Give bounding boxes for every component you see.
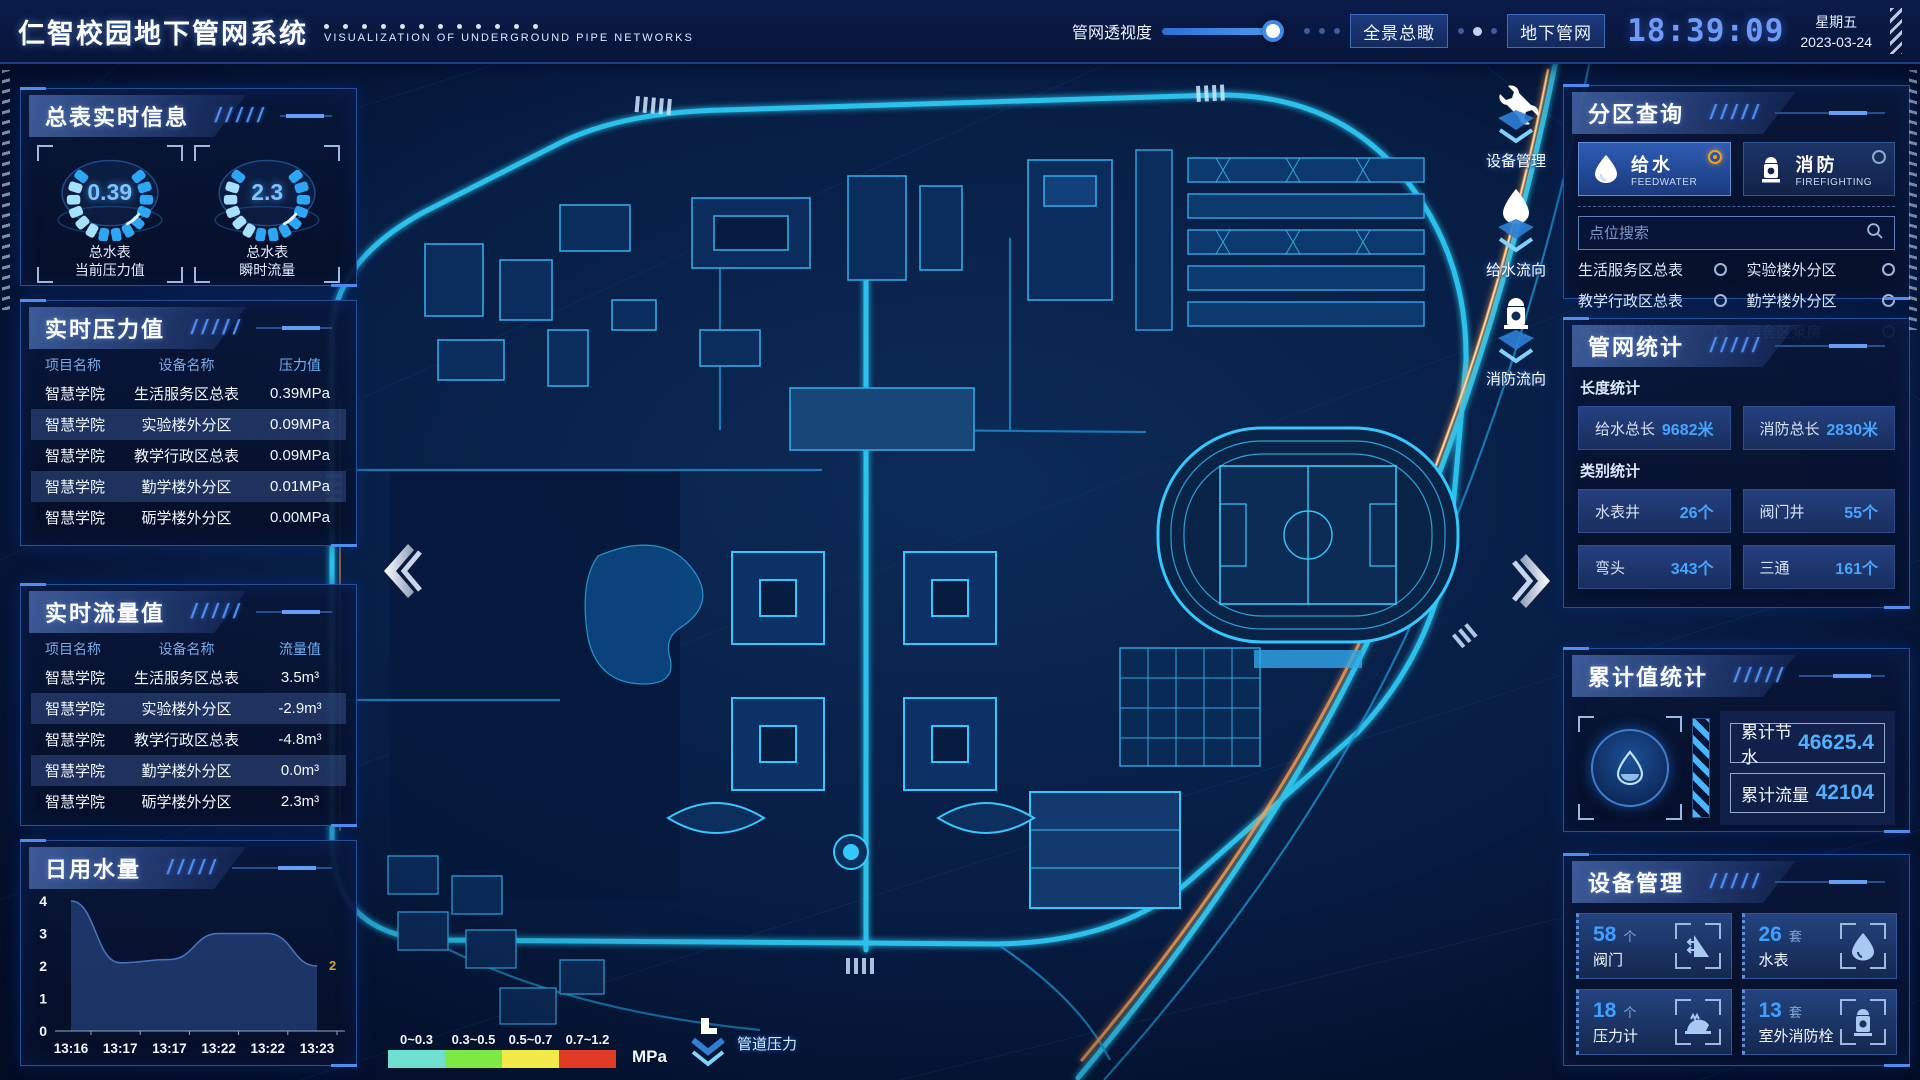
- table-row[interactable]: 智慧学院实验楼外分区-2.9m³: [31, 693, 346, 724]
- underground-pipes-button[interactable]: 地下管网: [1507, 14, 1605, 48]
- stat-chip: 三通161个: [1743, 545, 1896, 589]
- gauge-pressure: 0.39 总水表当前压力值: [37, 145, 183, 283]
- gauge-label: 总水表当前压力值: [75, 243, 145, 279]
- pipe-pressure-icon: [687, 1016, 729, 1068]
- water-drop-icon: [1591, 729, 1669, 807]
- daily-water-area-chart: 0123413:1613:1713:1713:2213:2213:232: [25, 889, 353, 1061]
- clock-date: 2023-03-24: [1800, 34, 1872, 50]
- tab-feedwater[interactable]: 给水FEEDWATER: [1578, 142, 1731, 196]
- svg-text:13:22: 13:22: [201, 1041, 236, 1056]
- svg-text:3: 3: [39, 926, 47, 942]
- search-input[interactable]: [1589, 225, 1866, 242]
- legend-range: 0.5~0.7: [502, 1032, 559, 1068]
- slashes-deco: /////: [167, 857, 220, 880]
- pipe-opacity-label: 管网透视度: [1072, 19, 1152, 43]
- panel-title: 日用水量: [45, 852, 141, 884]
- table-row[interactable]: 智慧学院教学行政区总表-4.8m³: [31, 724, 346, 755]
- map-pan-left-arrow[interactable]: [374, 538, 426, 604]
- clock-time: 18:39:09: [1627, 13, 1784, 49]
- table-row[interactable]: 智慧学院实验楼外分区0.09MPa: [31, 409, 346, 440]
- panel-realtime-pressure: 实时压力值 ///// 项目名称 设备名称 压力值 智慧学院生活服务区总表0.3…: [20, 300, 357, 546]
- slashes-deco: /////: [1710, 335, 1763, 358]
- table-row[interactable]: 智慧学院教学行政区总表0.09MPa: [31, 440, 346, 471]
- dots-separator: [1458, 27, 1497, 36]
- hazard-stripes-deco: [1890, 8, 1902, 54]
- gauge-value: 2.3: [194, 179, 340, 206]
- tab-radio: [1708, 150, 1722, 164]
- pipe-pressure-label: 管道压力: [737, 1033, 797, 1054]
- layer-firefighting-flow[interactable]: 消防流向: [1484, 292, 1548, 389]
- edge-deco: [2, 70, 10, 310]
- flow-table: 项目名称 设备名称 流量值 智慧学院生活服务区总表3.5m³ 智慧学院实验楼外分…: [31, 635, 346, 817]
- svg-text:0: 0: [39, 1023, 47, 1039]
- table-row[interactable]: 智慧学院生活服务区总表0.39MPa: [31, 378, 346, 409]
- zone-item[interactable]: 实验楼外分区: [1747, 254, 1896, 285]
- gauge-value: 0.39: [37, 179, 183, 206]
- top-header: 仁智校园地下管网系统 VISUALIZATION OF UNDERGROUND …: [0, 0, 1920, 64]
- panel-zone-query: 分区查询 ///// 给水FEEDWATER 消防FIREFIGHTING: [1563, 85, 1910, 299]
- tab-firefighting[interactable]: 消防FIREFIGHTING: [1743, 142, 1896, 196]
- panel-pipe-stats: 管网统计 ///// 长度统计 给水总长9682米 消防总长2830米 类别统计…: [1563, 318, 1910, 608]
- stripe-deco: [1692, 718, 1710, 818]
- hydrant-icon: [1840, 999, 1886, 1045]
- slashes-deco: /////: [191, 317, 244, 340]
- gauge-flow: 2.3 总水表瞬时流量: [194, 145, 340, 283]
- pressure-table: 项目名称 设备名称 压力值 智慧学院生活服务区总表0.39MPa 智慧学院实验楼…: [31, 351, 346, 533]
- valve-icon: [1675, 923, 1721, 969]
- device-card-pressure-gauge[interactable]: 18个 压力计: [1576, 989, 1732, 1055]
- legend-swatch: [388, 1050, 445, 1068]
- stat-chip: 消防总长2830米: [1743, 406, 1896, 450]
- panel-daily-water: 日用水量 ///// 0123413:1613:1713:1713:2213:2…: [20, 840, 357, 1066]
- gauge-label: 总水表瞬时流量: [239, 243, 295, 279]
- svg-text:1: 1: [39, 991, 47, 1007]
- app-subtitle-block: VISUALIZATION OF UNDERGROUND PIPE NETWOR…: [324, 24, 694, 44]
- table-header: 项目名称 设备名称 流量值: [31, 635, 346, 662]
- radio-icon[interactable]: [1714, 263, 1727, 276]
- svg-text:2: 2: [39, 958, 47, 974]
- panel-title: 管网统计: [1588, 330, 1684, 362]
- wrench-icon: [1484, 74, 1548, 148]
- panel-title: 设备管理: [1588, 866, 1684, 898]
- legend-unit: MPa: [632, 1047, 667, 1067]
- stat-chip: 给水总长9682米: [1578, 406, 1731, 450]
- legend-swatch: [502, 1050, 559, 1068]
- layer-device-management[interactable]: 设备管理: [1484, 74, 1548, 171]
- water-drop-icon: [1589, 152, 1623, 186]
- water-drop-icon: [1484, 183, 1548, 257]
- svg-text:13:16: 13:16: [54, 1041, 89, 1056]
- search-icon[interactable]: [1866, 222, 1884, 245]
- cumulative-flow-box: 累计流量 42104: [1730, 773, 1885, 813]
- svg-text:13:22: 13:22: [251, 1041, 286, 1056]
- slashes-deco: /////: [1710, 871, 1763, 894]
- search-box: [1578, 216, 1895, 250]
- legend-range: 0~0.3: [388, 1032, 445, 1068]
- legend-range: 0.7~1.2: [559, 1032, 616, 1068]
- svg-text:13:17: 13:17: [152, 1041, 187, 1056]
- slashes-deco: /////: [191, 601, 244, 624]
- svg-text:13:23: 13:23: [300, 1041, 335, 1056]
- water-meter-icon: [1840, 923, 1886, 969]
- dashboard: 仁智校园地下管网系统 VISUALIZATION OF UNDERGROUND …: [0, 0, 1920, 1080]
- hydrant-icon: [1484, 292, 1548, 366]
- clock-weekday: 星期五: [1815, 12, 1857, 32]
- panel-device-management: 设备管理 ///// 58个 阀门 26套 水表 18个 压力计: [1563, 854, 1910, 1066]
- panel-title: 分区查询: [1588, 97, 1684, 129]
- water-saving-icon-box: [1578, 716, 1682, 820]
- device-card-valve[interactable]: 58个 阀门: [1576, 913, 1732, 979]
- map-layer-controls: 设备管理 给水流向 消防流向: [1470, 74, 1562, 389]
- dashed-divider: [1578, 206, 1895, 207]
- dots-separator: [1304, 28, 1340, 34]
- radio-icon[interactable]: [1882, 263, 1895, 276]
- radio-icon[interactable]: [1714, 294, 1727, 307]
- pressure-legend: 0~0.30.3~0.50.5~0.70.7~1.2 MPa 管道压力: [388, 1016, 797, 1068]
- table-row[interactable]: 智慧学院勤学楼外分区0.01MPa: [31, 471, 346, 502]
- zone-item[interactable]: 生活服务区总表: [1578, 254, 1727, 285]
- table-row[interactable]: 智慧学院砺学楼外分区2.3m³: [31, 786, 346, 817]
- legend-range: 0.3~0.5: [445, 1032, 502, 1068]
- edge-deco: [1909, 70, 1917, 330]
- slashes-deco: /////: [215, 105, 268, 128]
- app-subtitle: VISUALIZATION OF UNDERGROUND PIPE NETWOR…: [324, 32, 694, 44]
- radio-icon[interactable]: [1882, 294, 1895, 307]
- app-title: 仁智校园地下管网系统: [18, 12, 308, 51]
- panel-realtime-flow: 实时流量值 ///// 项目名称 设备名称 流量值 智慧学院生活服务区总表3.5…: [20, 584, 357, 826]
- panel-cumulative-stats: 累计值统计 ///// 累计节水 46625.4 累计流量 42104: [1563, 648, 1910, 832]
- zone-item[interactable]: 教学行政区总表: [1578, 285, 1727, 316]
- slider-thumb[interactable]: [1262, 20, 1284, 42]
- table-row[interactable]: 智慧学院砺学楼外分区0.00MPa: [31, 502, 346, 533]
- legend-swatch: [559, 1050, 616, 1068]
- map-pan-right-arrow[interactable]: [1508, 548, 1560, 614]
- panel-title: 累计值统计: [1588, 660, 1708, 692]
- length-stats-label: 长度统计: [1580, 377, 1893, 398]
- pressure-gauge-icon: [1675, 999, 1721, 1045]
- table-row[interactable]: 智慧学院生活服务区总表3.5m³: [31, 662, 346, 693]
- pipe-opacity-slider[interactable]: [1162, 28, 1280, 35]
- svg-text:13:17: 13:17: [103, 1041, 138, 1056]
- panel-title: 实时流量值: [45, 596, 165, 628]
- panel-master-meter: 总表实时信息 ///// 0.39 总水表当前压力值 2.3 总水表瞬时流量: [20, 88, 357, 286]
- panel-title: 总表实时信息: [45, 100, 189, 132]
- stat-chip: 水表井26个: [1578, 489, 1731, 533]
- hydrant-icon: [1754, 152, 1788, 186]
- pipe-opacity-group: 管网透视度: [1072, 19, 1280, 43]
- slashes-deco: /////: [1734, 665, 1787, 688]
- stat-chip: 阀门井55个: [1743, 489, 1896, 533]
- slashes-deco: /////: [1710, 102, 1763, 125]
- svg-text:4: 4: [39, 893, 47, 909]
- table-header: 项目名称 设备名称 压力值: [31, 351, 346, 378]
- device-card-water-meter[interactable]: 26套 水表: [1742, 913, 1898, 979]
- zone-item[interactable]: 勤学楼外分区: [1747, 285, 1896, 316]
- category-stats-label: 类别统计: [1580, 460, 1893, 481]
- svg-text:2: 2: [329, 958, 336, 973]
- cumulative-saving-box: 累计节水 46625.4: [1730, 723, 1885, 763]
- table-row[interactable]: 智慧学院勤学楼外分区0.0m³: [31, 755, 346, 786]
- legend-scale: 0~0.30.3~0.50.5~0.70.7~1.2: [388, 1032, 616, 1068]
- clock-group: 18:39:09 星期五 2023-03-24: [1627, 12, 1872, 50]
- title-dots: [324, 24, 694, 29]
- device-card-hydrant[interactable]: 13套 室外消防栓: [1742, 989, 1898, 1055]
- stat-chip: 弯头343个: [1578, 545, 1731, 589]
- panorama-overview-button[interactable]: 全景总瞰: [1350, 14, 1448, 48]
- tab-radio: [1872, 150, 1886, 164]
- legend-swatch: [445, 1050, 502, 1068]
- layer-feedwater-flow[interactable]: 给水流向: [1484, 183, 1548, 280]
- panel-title: 实时压力值: [45, 312, 165, 344]
